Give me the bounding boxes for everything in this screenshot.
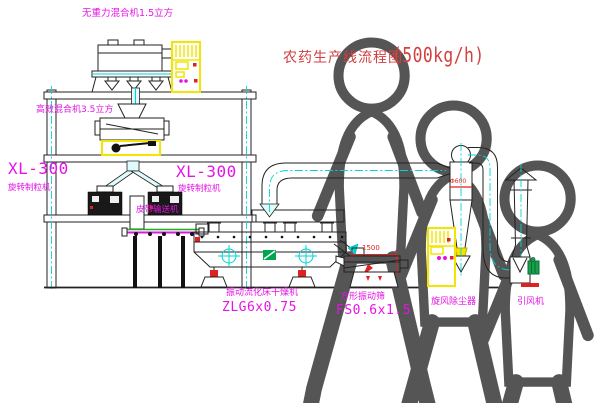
diagram-capacity: (500kg/h) [392,45,485,65]
dimension-sieve-width: 1500 [362,245,380,252]
granulator-left [88,186,122,215]
label-sieve-model: FS0.6x1.5 [336,304,411,317]
dimension-cyclone-diameter: Φ600 [450,179,466,185]
label-dryer-name: 振动流化床干燥机 [226,289,298,298]
control-cabinet-upper [172,42,200,92]
belt-conveyor [122,228,204,288]
fluid-bed-dryer [194,210,358,287]
building-frame [44,86,256,290]
label-granulator-right-name: 旋转制粒机 [178,185,221,194]
label-granulator-left-name: 旋转制粒机 [8,184,51,193]
label-granulator-left-model: XL-300 [8,161,69,177]
label-sieve-name: 方形振动筛 [340,293,385,302]
label-dryer-model: ZLG6x0.75 [222,301,297,314]
label-granulator-right-model: XL-300 [176,164,237,180]
gravity-free-mixer [92,40,177,92]
control-cabinet-lower [428,228,455,286]
label-gravity-mixer: 无重力混合机1.5立方 [82,9,173,19]
label-high-mixer: 高效混合机3.5立方 [36,106,113,115]
label-belt-conveyor: 皮带输送机 [136,206,179,215]
diagram-title: 农药生产线流程图 [283,51,403,65]
label-fan: 引风机 [517,298,544,307]
flow-diagram-canvas: 无重力混合机1.5立方 农药生产线流程图 (500kg/h) 高效混合机3.5立… [0,0,600,403]
label-cyclone: 旋风除尘器 [431,298,476,307]
